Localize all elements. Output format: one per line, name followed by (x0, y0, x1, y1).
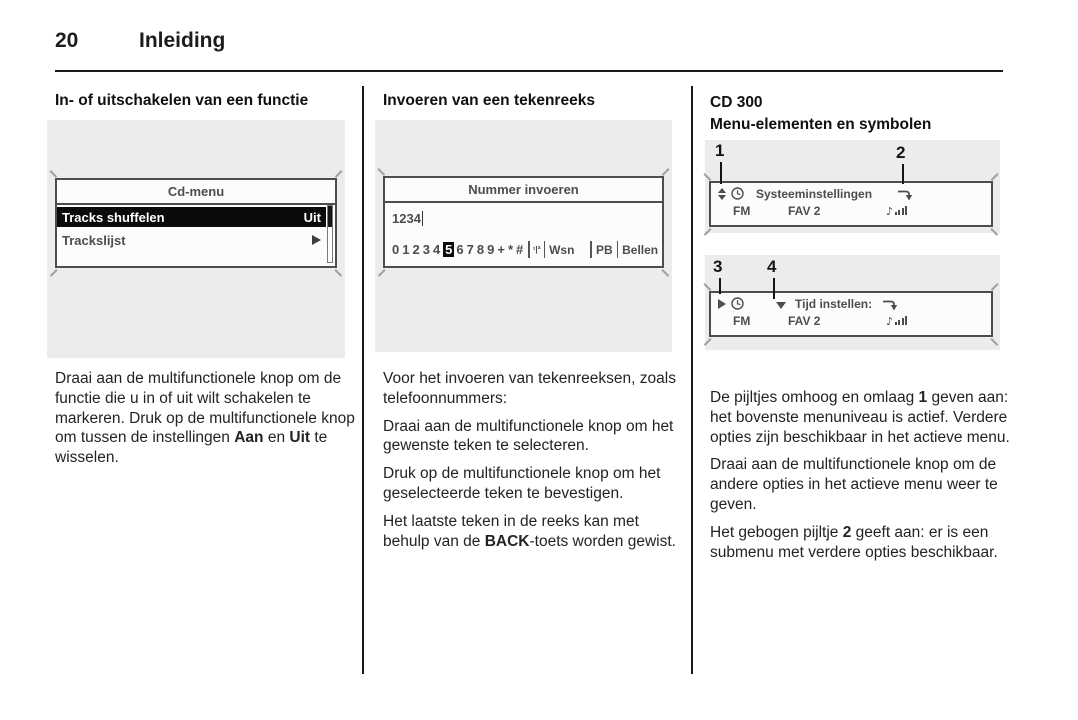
display-title: Nummer invoeren (385, 178, 662, 201)
paragraph: De pijltjes omhoog en omlaag 1 ge­ven aa… (710, 388, 1012, 447)
display-status-row: FM FAV 2 ♪ (715, 314, 987, 331)
display-menu-title: Tijd instellen: (795, 297, 872, 311)
heading-line: CD 300 (710, 92, 931, 114)
corner-tick (378, 269, 385, 276)
char: 8 (477, 242, 484, 257)
clock-icon (731, 187, 744, 203)
action-wsn: Wsn (549, 243, 574, 257)
callout-line (720, 162, 722, 184)
page-number: 20 (55, 29, 78, 53)
callout-1: 1 (715, 141, 724, 161)
paragraph: Voor het invoeren van tekenreeksen, zoal… (383, 369, 681, 409)
favourites-label: FAV 2 (788, 314, 820, 328)
corner-tick (991, 283, 998, 290)
manual-page: 20 Inleiding In- of uitschakelen van een… (0, 0, 1078, 720)
header-rule (55, 70, 1003, 72)
menu-row-value: Uit (304, 210, 321, 225)
column3-body: De pijltjes omhoog en omlaag 1 ge­ven aa… (710, 388, 1012, 570)
corner-tick (991, 338, 998, 345)
column-divider (362, 86, 364, 674)
band-label: FM (733, 314, 750, 328)
divider (617, 241, 619, 258)
char-selected: 5 (443, 242, 454, 257)
figure-cd300-submenu: 3 4 Tijd instellen: FM FAV 2 (705, 255, 1000, 350)
divider (590, 241, 592, 258)
paragraph: Het gebogen pijltje 2 geeft aan: er is e… (710, 523, 1012, 563)
right-arrow-icon (718, 299, 726, 309)
charset-symbol: ¹|ª (533, 245, 541, 254)
chevron-right-icon (312, 235, 321, 245)
submenu-arrow-icon (882, 298, 898, 314)
number-input-line: 1234 (385, 203, 662, 229)
char: 0 (392, 242, 399, 257)
callout-line (902, 164, 904, 184)
cd300-display-top: Systeeminstellingen FM FAV 2 ♪ (709, 181, 993, 227)
page-title: Inleiding (139, 29, 225, 53)
action-pb: PB (596, 243, 613, 257)
char: 1 (402, 242, 409, 257)
char: 3 (423, 242, 430, 257)
display-menu-title: Systeeminstellingen (756, 187, 872, 201)
char: # (516, 242, 523, 257)
divider (544, 241, 546, 258)
callout-3: 3 (713, 257, 722, 277)
up-down-arrows-icon (718, 188, 726, 200)
input-value: 1234 (392, 211, 421, 226)
paragraph: Het laatste teken in de reeks kan met be… (383, 512, 681, 552)
section-heading-enter-string: Invoeren van een tekenreeks (383, 92, 595, 110)
menu-row-label: Tracks shuffelen (62, 210, 165, 225)
corner-tick (991, 228, 998, 235)
corner-tick (335, 170, 342, 177)
column2-body: Voor het invoeren van tekenreeksen, zoal… (383, 369, 681, 559)
number-entry-display: Nummer invoeren 1234 0 1 2 3 4 5 6 7 8 9… (383, 176, 664, 268)
corner-tick (378, 168, 385, 175)
corner-tick (662, 168, 669, 175)
clock-icon (731, 297, 744, 313)
favourites-label: FAV 2 (788, 204, 820, 218)
menu-row-tracks-shuffelen: Tracks shuffelen Uit (57, 207, 326, 227)
scrollbar-thumb (328, 206, 332, 227)
action-bellen: Bellen (622, 243, 658, 257)
column1-body: Draai aan de multifunctionele knop om de… (55, 369, 357, 476)
callout-line (719, 278, 721, 294)
corner-tick (704, 283, 711, 290)
callout-2: 2 (896, 143, 905, 163)
cd-menu-display: Cd-menu Tracks shuffelen Uit Trackslijst (55, 178, 337, 268)
display-status-row: FM FAV 2 ♪ (715, 204, 987, 221)
character-select-row: 0 1 2 3 4 5 6 7 8 9 + * # ¹|ª Wsn PB (392, 241, 659, 258)
callout-line (773, 278, 775, 299)
corner-tick (991, 173, 998, 180)
figure-cd300-top-level: 1 2 Systeeminstellingen FM FAV 2 (705, 140, 1000, 233)
corner-tick (704, 228, 711, 235)
corner-tick (335, 269, 342, 276)
audio-signal-icon: ♪ (886, 314, 907, 328)
paragraph: Druk op de multifunctionele knop om het … (383, 464, 681, 504)
corner-tick (704, 338, 711, 345)
corner-tick (704, 173, 711, 180)
section-heading-cd300: CD 300 Menu-elementen en symbolen (710, 92, 931, 135)
divider (528, 241, 530, 258)
paragraph: Draai aan de multifunctionele knop om de… (55, 369, 357, 468)
submenu-arrow-icon (897, 188, 913, 204)
figure-cd-menu: Cd-menu Tracks shuffelen Uit Trackslijst (47, 120, 345, 358)
char: 4 (433, 242, 440, 257)
display-title-divider (57, 203, 335, 205)
char: * (508, 242, 513, 257)
callout-4: 4 (767, 257, 776, 277)
corner-tick (50, 269, 57, 276)
cd300-display-submenu: Tijd instellen: FM FAV 2 ♪ (709, 291, 993, 337)
band-label: FM (733, 204, 750, 218)
figure-number-entry: Nummer invoeren 1234 0 1 2 3 4 5 6 7 8 9… (375, 120, 672, 352)
heading-line: Menu-elementen en symbolen (710, 114, 931, 136)
display-title: Cd-menu (57, 180, 335, 203)
char: + (497, 242, 505, 257)
column-divider (691, 86, 693, 674)
section-heading-toggle-function: In- of uitschakelen van een functie (55, 92, 308, 110)
corner-tick (50, 170, 57, 177)
menu-row-label: Trackslijst (62, 233, 126, 248)
text-cursor-icon (422, 211, 424, 226)
char: 7 (467, 242, 474, 257)
paragraph: Draai aan de multifunctionele knop om de… (710, 455, 1012, 514)
paragraph: Draai aan de multifunctionele knop om he… (383, 417, 681, 457)
corner-tick (662, 269, 669, 276)
display-menu-row: Systeeminstellingen (715, 186, 987, 203)
display-menu-row: Tijd instellen: (715, 296, 987, 313)
scrollbar (327, 205, 333, 263)
down-arrow-icon (776, 302, 786, 309)
char: 2 (412, 242, 419, 257)
audio-signal-icon: ♪ (886, 204, 907, 218)
char: 6 (456, 242, 463, 257)
menu-row-trackslijst: Trackslijst (57, 230, 326, 250)
char: 9 (487, 242, 494, 257)
